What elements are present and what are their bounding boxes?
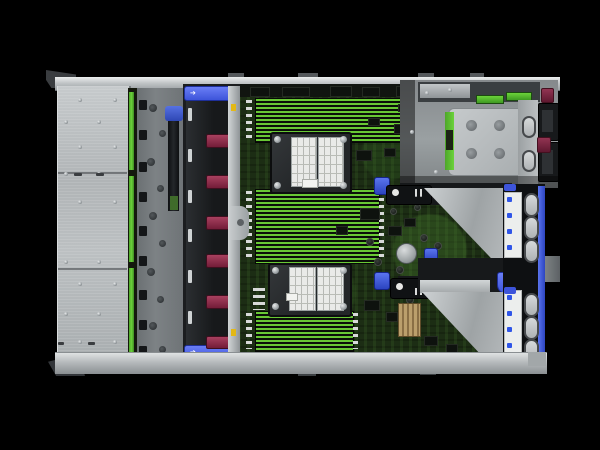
cpu2-tag (286, 293, 298, 301)
drive-bay-cover-plate (57, 86, 131, 362)
cpu2-label-left (289, 267, 316, 311)
cmos-battery (396, 243, 417, 264)
chassis-bottom-rail (55, 352, 547, 374)
bay-shadow-left (400, 80, 415, 188)
keyhole-icon (396, 283, 403, 290)
blue-retainer-handle (165, 106, 183, 121)
arrow-right-icon: ➔ (190, 89, 196, 97)
chipset-heatsink (398, 303, 421, 337)
cpu1-tag (302, 179, 318, 188)
fan-cage-latch-top: ➔ (184, 86, 231, 101)
tray-guide-handle (446, 130, 453, 150)
cpu1-label-right (318, 137, 344, 187)
bottom-rail-step (528, 352, 546, 366)
pcie-column-blue-strip (538, 186, 545, 362)
inter-riser-rail (420, 280, 490, 293)
guide-latch-hole (237, 219, 244, 226)
keyhole-icon (392, 189, 399, 196)
server-interior-photo: ➔ ➔ (0, 0, 600, 450)
retainer-tip (170, 196, 178, 210)
